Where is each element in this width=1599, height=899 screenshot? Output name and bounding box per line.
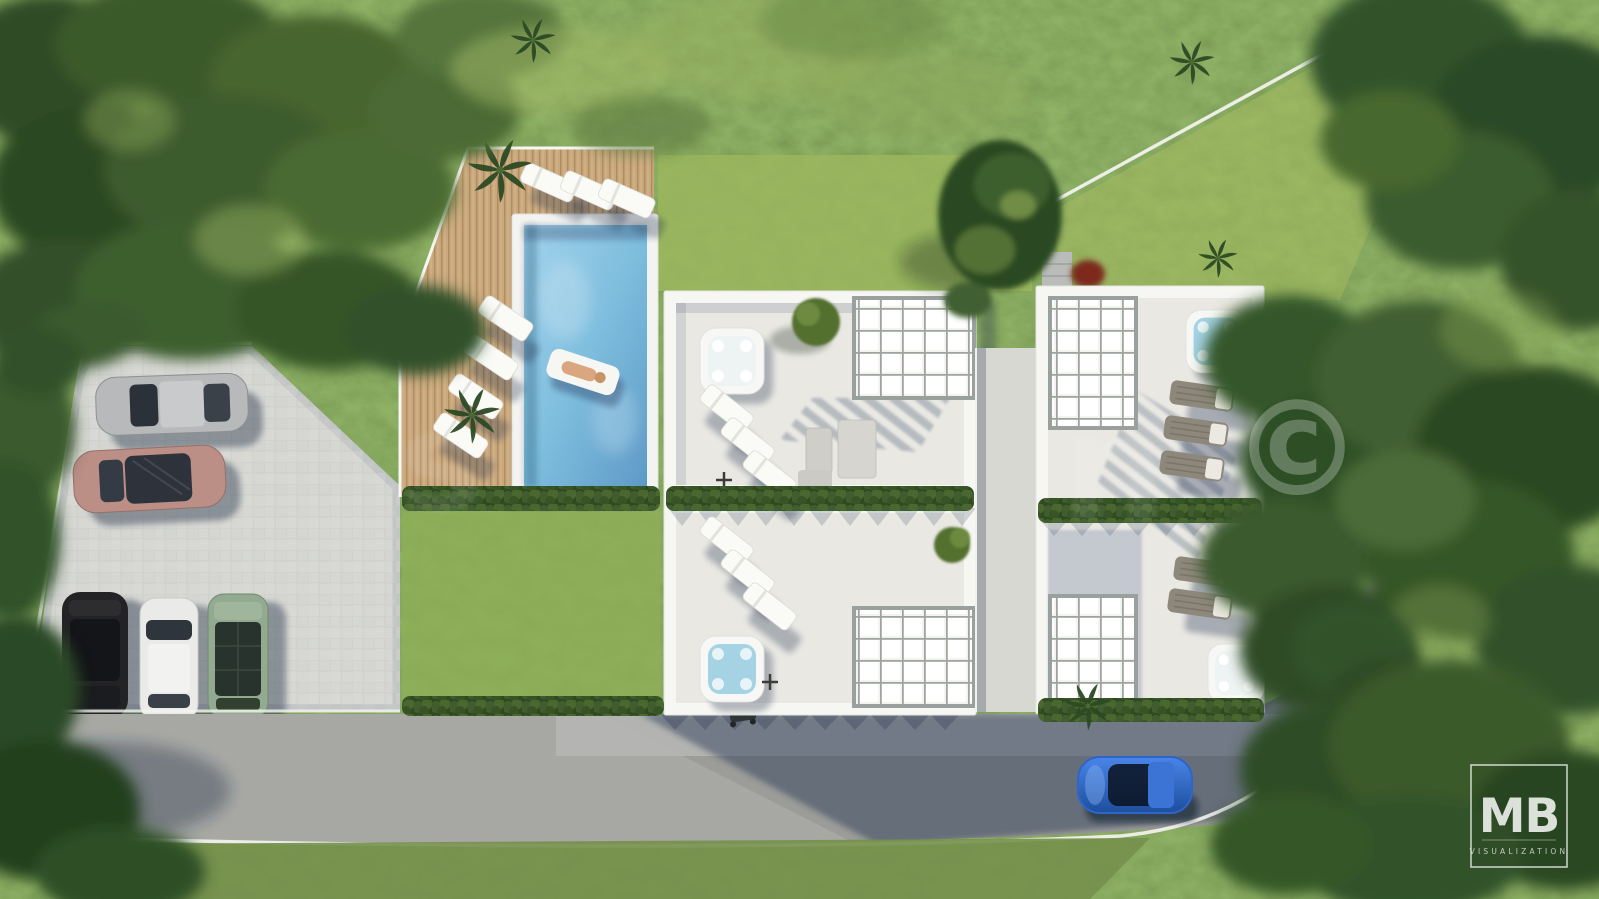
logo-subtitle: VISUALIZATION bbox=[1470, 847, 1569, 856]
car-blue bbox=[1078, 757, 1198, 822]
logo-initials: MB bbox=[1479, 789, 1560, 844]
pool-water-gradient bbox=[524, 225, 647, 487]
pergola bbox=[854, 608, 974, 706]
hedge-divider-left bbox=[666, 486, 974, 511]
car-silver bbox=[95, 372, 263, 452]
hedge-lawn-road bbox=[402, 696, 664, 716]
red-bush bbox=[1071, 260, 1105, 288]
building-left bbox=[664, 291, 996, 715]
watermark-letter: n bbox=[1060, 382, 1167, 556]
aerial-render-image: s n © MB VISUALIZATION bbox=[0, 0, 1599, 899]
watermark-letter: s bbox=[400, 381, 483, 544]
terrace-tree bbox=[934, 527, 970, 563]
grass-below-road bbox=[60, 838, 1150, 899]
scene-canvas: s n © MB VISUALIZATION bbox=[0, 0, 1599, 899]
copyright-symbol: © bbox=[1231, 373, 1363, 527]
car-green bbox=[208, 594, 286, 724]
central-core bbox=[976, 348, 1038, 712]
car-white bbox=[140, 598, 216, 726]
car-rose bbox=[72, 443, 242, 528]
jacuzzi bbox=[700, 636, 773, 712]
studio-logo: MB VISUALIZATION bbox=[1470, 765, 1569, 867]
